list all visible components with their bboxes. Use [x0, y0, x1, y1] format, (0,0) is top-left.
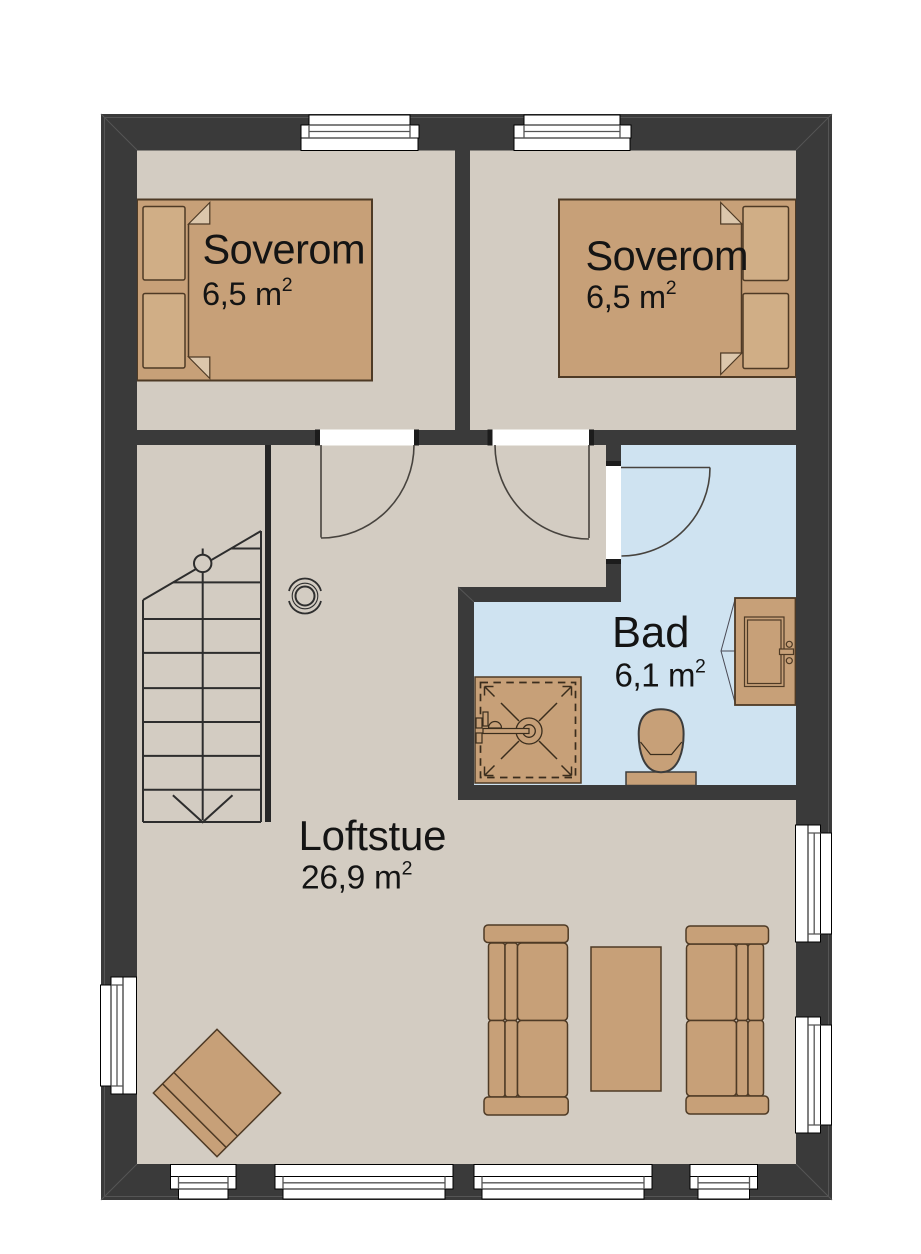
svg-text:6,5 m2: 6,5 m2	[202, 274, 292, 312]
svg-text:6,1 m2: 6,1 m2	[615, 656, 706, 694]
svg-text:26,9 m2: 26,9 m2	[301, 858, 412, 897]
svg-text:Soverom: Soverom	[586, 232, 749, 279]
svg-text:Bad: Bad	[612, 609, 689, 657]
svg-text:6,5 m2: 6,5 m2	[586, 277, 676, 315]
svg-text:Soverom: Soverom	[203, 226, 366, 273]
svg-text:Loftstue: Loftstue	[299, 812, 447, 859]
